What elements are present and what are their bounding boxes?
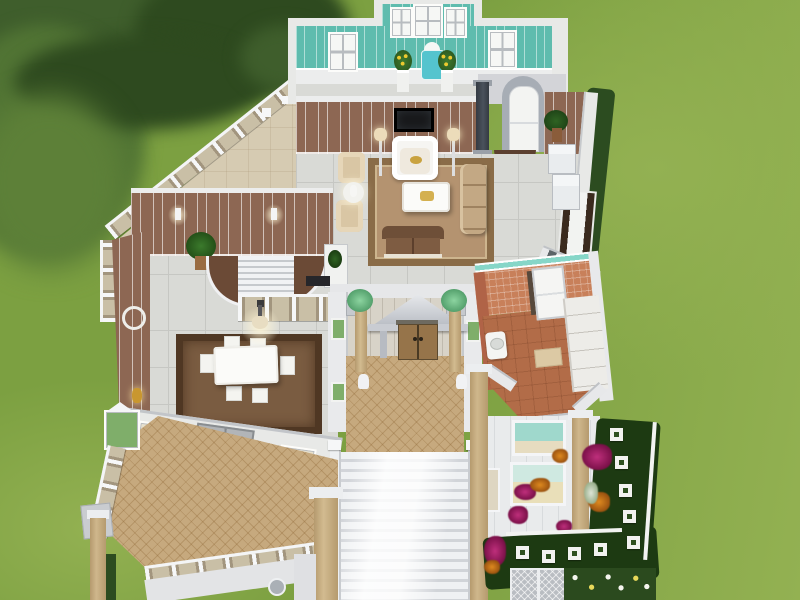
stone-column	[314, 498, 338, 600]
lower-floor-wall	[294, 554, 316, 600]
dining-table[interactable]	[213, 345, 278, 385]
stepping-stone[interactable]	[594, 543, 607, 556]
loveseat-trim	[384, 254, 442, 258]
stepping-stone[interactable]	[542, 550, 555, 563]
console-plant[interactable]	[328, 250, 342, 268]
bay-window-center[interactable]	[413, 4, 443, 38]
sunflower-vase[interactable]	[438, 50, 456, 72]
stepping-stone[interactable]	[568, 547, 581, 560]
dining-chair[interactable]	[226, 386, 242, 401]
planted-column	[449, 308, 461, 372]
railing-post-cap	[262, 108, 271, 117]
floor-lamp-shade[interactable]	[374, 128, 387, 141]
portico-column	[380, 331, 387, 358]
chandelier[interactable]	[252, 316, 268, 329]
white-statue[interactable]	[358, 374, 369, 389]
window[interactable]	[331, 382, 346, 402]
porch-west-wall	[328, 292, 348, 432]
round-window[interactable]	[268, 578, 286, 596]
floor-lamp-shade[interactable]	[447, 128, 460, 141]
table-lamp[interactable]	[350, 185, 357, 197]
floor-lamp-pole[interactable]	[452, 136, 455, 176]
bathroom-door[interactable]	[531, 265, 568, 320]
cutaway-window[interactable]	[104, 410, 140, 450]
stepping-stone[interactable]	[619, 484, 632, 497]
door-handle	[413, 337, 417, 341]
orange-flower-bush[interactable]	[530, 478, 550, 492]
column-plant[interactable]	[347, 289, 373, 312]
dining-chair[interactable]	[252, 388, 268, 403]
floor-lamp-pole[interactable]	[379, 136, 382, 176]
palm-pot	[552, 128, 562, 142]
pilaster	[476, 82, 489, 154]
game-viewport	[0, 0, 800, 600]
landing-wall	[131, 193, 333, 256]
stepping-stone[interactable]	[610, 428, 623, 441]
bathroom	[472, 245, 618, 435]
dark-console[interactable]	[306, 276, 330, 286]
window[interactable]	[488, 30, 517, 69]
pedestal[interactable]	[397, 70, 409, 92]
sunlight-glare	[338, 452, 470, 600]
gate-panel[interactable]	[538, 568, 567, 600]
gate-panel[interactable]	[510, 568, 539, 600]
window[interactable]	[328, 32, 358, 72]
bath-mat[interactable]	[534, 347, 563, 368]
armchair[interactable]	[338, 152, 365, 183]
sunflower-vase[interactable]	[394, 50, 412, 72]
dining-chair[interactable]	[280, 356, 295, 375]
stepping-stone[interactable]	[627, 536, 640, 549]
wall-tv[interactable]	[394, 108, 434, 132]
door-handle	[419, 337, 423, 341]
orange-flower-bush[interactable]	[552, 449, 568, 463]
lattice-gates[interactable]	[510, 568, 564, 600]
white-cabinet[interactable]	[552, 174, 580, 210]
column-plant[interactable]	[441, 289, 467, 312]
wall-medallion	[122, 306, 146, 330]
gold-tray	[420, 191, 434, 201]
newel-post	[328, 440, 341, 450]
gold-sconce[interactable]	[132, 388, 142, 403]
wall-sconce[interactable]	[175, 208, 181, 220]
white-statue[interactable]	[456, 374, 467, 389]
orange-flower-bush[interactable]	[484, 560, 500, 574]
beige-sofa[interactable]	[460, 164, 486, 234]
magenta-flower-bush[interactable]	[582, 444, 612, 470]
hall-door[interactable]	[509, 86, 539, 152]
planted-column	[355, 308, 367, 372]
bay-window-left[interactable]	[390, 7, 413, 38]
wall-sconce[interactable]	[271, 208, 277, 220]
white-flower-bush[interactable]	[584, 482, 598, 504]
stone-column	[90, 518, 106, 600]
stepping-stone[interactable]	[623, 510, 636, 523]
white-flower-border[interactable]	[564, 568, 656, 600]
stepping-stone[interactable]	[516, 546, 529, 559]
settee-gold-medallion	[410, 156, 422, 164]
white-cabinet[interactable]	[548, 144, 576, 174]
pedestal[interactable]	[441, 70, 453, 92]
stepping-stone[interactable]	[615, 456, 628, 469]
bay-window-right[interactable]	[444, 7, 467, 38]
armchair[interactable]	[336, 200, 363, 232]
entry-double-doors[interactable]	[398, 324, 438, 360]
magenta-flower-bush[interactable]	[508, 506, 528, 524]
window[interactable]	[331, 318, 346, 340]
